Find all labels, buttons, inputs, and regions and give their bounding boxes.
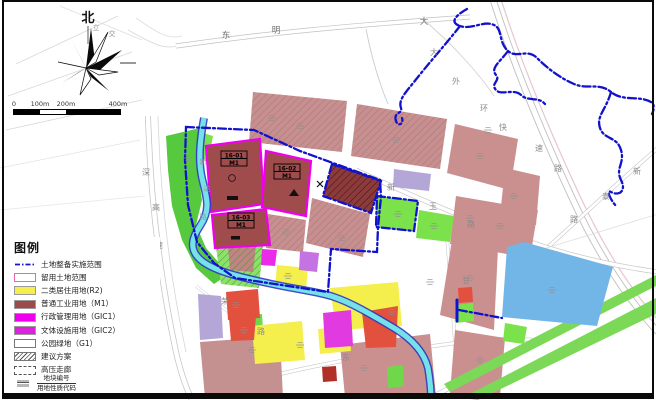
svg-text:路: 路 (257, 326, 265, 336)
legend-item-plot-code: 地块编号 用地性质代码 (14, 379, 160, 388)
legend-item-hv-corridor: 高压走廊 (14, 366, 160, 375)
fill-swatch (14, 313, 36, 322)
compass-rose: 北 (46, 6, 138, 98)
planning-map-canvas: 16-01 M1 16-02 M1 16-03 M1 东 明 大 立 交 (0, 0, 656, 400)
fill-swatch (14, 300, 36, 309)
parcel-red (226, 289, 260, 320)
outline-box-swatch (14, 273, 36, 282)
parcel-gic (261, 249, 277, 266)
dashdot-line-swatch (14, 260, 36, 269)
dashed-box-swatch (14, 366, 36, 375)
svg-text:东: 东 (342, 352, 350, 362)
scale-tick: 400m (109, 100, 128, 108)
plot-code-swatch (14, 379, 32, 388)
compass-star (58, 28, 136, 95)
parcels (166, 92, 656, 400)
legend: 图例 土地整备实施范围 留用土地范围 二类居住用地(R2) 普通工业用地（M1）… (8, 237, 160, 390)
parcel-green (387, 365, 404, 388)
scale-bar-segments (13, 109, 121, 115)
parcel-m1-16-02 (262, 151, 311, 216)
svg-text:大: 大 (420, 16, 429, 27)
scale-labels: 0 100m 200m 400m (10, 100, 130, 108)
fill-swatch (14, 286, 36, 295)
legend-item-g1: 公园绿地（G1） (14, 339, 160, 348)
parcel-dark-red (322, 366, 337, 382)
svg-text:深: 深 (142, 168, 150, 177)
svg-text:路: 路 (554, 163, 562, 173)
parcel-lavender (198, 294, 223, 340)
svg-text:16-03: 16-03 (232, 215, 251, 221)
svg-text:外: 外 (452, 76, 460, 86)
svg-text:路: 路 (570, 214, 578, 224)
svg-text:大: 大 (430, 47, 438, 57)
svg-text:路: 路 (200, 212, 207, 221)
parcel-red (229, 316, 256, 341)
svg-text:M1: M1 (236, 223, 246, 229)
svg-text:明: 明 (272, 26, 281, 36)
hatch-swatch (14, 352, 36, 361)
svg-text:荣: 荣 (221, 296, 229, 306)
parcel-red (458, 287, 473, 303)
legend-item-boundary: 土地整备实施范围 (14, 260, 160, 269)
scale-bar: 0 100m 200m 400m (10, 100, 130, 115)
svg-text:泰: 泰 (602, 191, 610, 201)
plot-code-label: 地块编号 用地性质代码 (37, 375, 76, 391)
svg-text:16-02: 16-02 (278, 166, 297, 172)
svg-text:速: 速 (535, 144, 543, 153)
parcel-gic (299, 251, 319, 272)
svg-text:新: 新 (200, 157, 207, 166)
svg-text:M1: M1 (282, 174, 292, 180)
svg-text:路: 路 (467, 219, 475, 229)
outline-box-swatch (14, 339, 36, 348)
parcel-gic (323, 310, 353, 348)
legend-item-r2: 二类居住用地(R2) (14, 286, 160, 295)
legend-title: 图例 (14, 239, 160, 256)
scale-tick: 200m (57, 100, 76, 108)
svg-text:M1: M1 (229, 161, 239, 167)
fill-swatch (14, 326, 36, 335)
scale-tick: 100m (31, 100, 50, 108)
water-body (502, 242, 613, 326)
legend-item-gic1: 行政管理用地（GIC1） (14, 313, 160, 322)
svg-text:16-01: 16-01 (225, 153, 244, 159)
legend-item-reserved-land: 留用土地范围 (14, 273, 160, 282)
svg-text:甘: 甘 (462, 275, 470, 285)
svg-text:新: 新 (633, 166, 641, 176)
legend-item-m1: 普通工业用地（M1） (14, 300, 160, 309)
parcel-green (503, 323, 527, 344)
north-label: 北 (81, 11, 94, 26)
legend-item-proposal: 建议方案 (14, 352, 160, 361)
parcel-pink (500, 168, 540, 225)
parcel-m1-16-01 (206, 139, 264, 212)
svg-text:环: 环 (480, 104, 488, 113)
svg-text:玉: 玉 (429, 202, 437, 211)
legend-item-gic2: 文体设施用地（GIC2） (14, 326, 160, 335)
svg-text:高: 高 (152, 202, 160, 212)
svg-text:达: 达 (204, 184, 211, 193)
svg-text:新: 新 (387, 182, 395, 192)
scale-tick: 0 (12, 100, 16, 108)
svg-text:东: 东 (222, 30, 231, 41)
svg-text:快: 快 (499, 122, 507, 132)
